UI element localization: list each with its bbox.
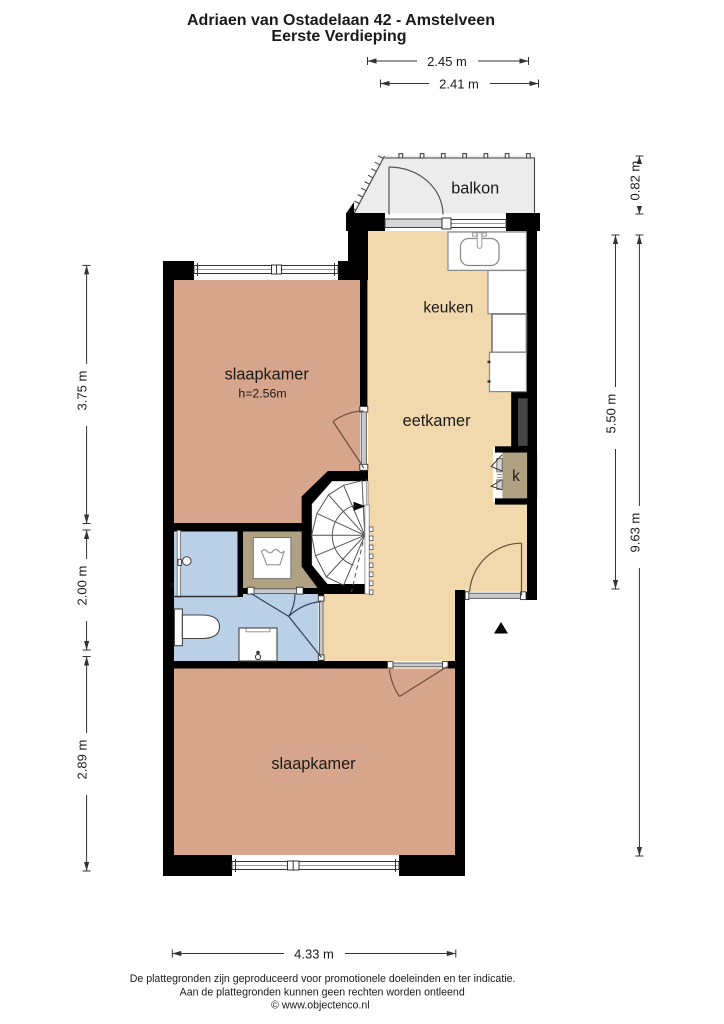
svg-text:2.00 m: 2.00 m	[75, 566, 90, 606]
svg-text:Adriaen van Ostadelaan 42 - Am: Adriaen van Ostadelaan 42 - Amstelveen	[187, 12, 495, 29]
svg-text:2.45 m: 2.45 m	[427, 54, 467, 69]
svg-text:Eerste Verdieping: Eerste Verdieping	[271, 28, 406, 45]
svg-text:eetkamer: eetkamer	[403, 412, 471, 430]
svg-text:De plattegronden zijn geproduc: De plattegronden zijn geproduceerd voor …	[130, 973, 516, 985]
svg-text:© www.objectenco.nl: © www.objectenco.nl	[271, 1000, 370, 1012]
svg-text:2.89 m: 2.89 m	[75, 740, 90, 780]
svg-text:slaapkamer: slaapkamer	[271, 755, 356, 773]
svg-text:3.75 m: 3.75 m	[75, 371, 90, 411]
svg-text:4.33 m: 4.33 m	[294, 947, 334, 962]
svg-text:0.82 m: 0.82 m	[627, 161, 642, 201]
svg-text:2.41 m: 2.41 m	[439, 77, 479, 92]
svg-text:h=2.56m: h=2.56m	[238, 386, 286, 400]
svg-text:slaapkamer: slaapkamer	[225, 366, 310, 384]
svg-text:Aan de plattegronden kunnen ge: Aan de plattegronden kunnen geen rechten…	[180, 987, 465, 999]
svg-text:k: k	[512, 468, 520, 485]
svg-text:balkon: balkon	[451, 180, 499, 198]
svg-text:9.63 m: 9.63 m	[627, 513, 642, 553]
svg-text:5.50 m: 5.50 m	[604, 394, 619, 434]
svg-text:keuken: keuken	[423, 299, 473, 316]
